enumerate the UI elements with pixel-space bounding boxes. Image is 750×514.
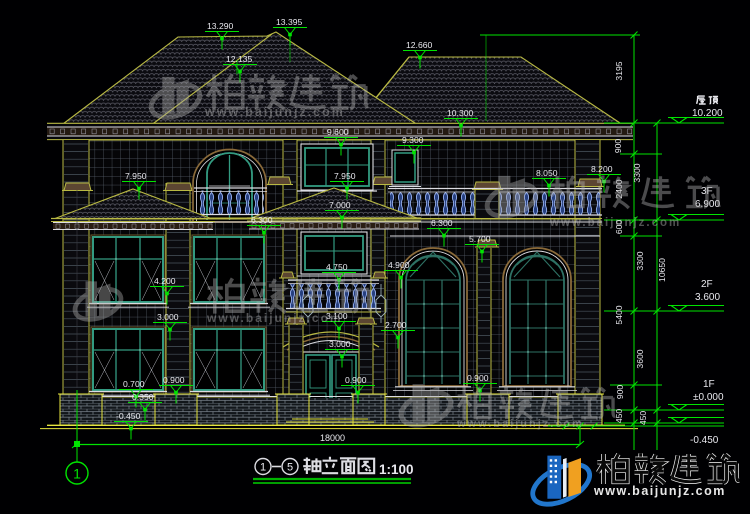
- svg-text:10650: 10650: [657, 258, 667, 282]
- svg-text:2F: 2F: [701, 279, 713, 290]
- svg-text:450: 450: [638, 411, 648, 426]
- svg-text:450: 450: [614, 409, 624, 424]
- svg-text:-0.450: -0.450: [116, 411, 141, 421]
- svg-text:1:100: 1:100: [379, 462, 414, 477]
- svg-text:13.290: 13.290: [207, 21, 234, 31]
- svg-text:www.baijunjz.com: www.baijunjz.com: [206, 311, 343, 325]
- svg-text:9.600: 9.600: [327, 127, 349, 137]
- svg-text:3.000: 3.000: [329, 339, 351, 349]
- svg-text:5: 5: [287, 462, 293, 474]
- svg-text:4.200: 4.200: [154, 276, 176, 286]
- svg-text:18000: 18000: [320, 433, 345, 443]
- svg-text:9.300: 9.300: [402, 135, 424, 145]
- svg-text:7.950: 7.950: [334, 171, 356, 181]
- svg-text:6.300: 6.300: [431, 218, 453, 228]
- svg-text:5.700: 5.700: [469, 234, 491, 244]
- svg-text:4.900: 4.900: [388, 260, 410, 270]
- svg-text:www.baijunjz.com: www.baijunjz.com: [456, 418, 584, 430]
- svg-text:10.300: 10.300: [447, 108, 474, 118]
- svg-text:1F: 1F: [703, 379, 715, 390]
- svg-text:3.000: 3.000: [157, 312, 179, 322]
- svg-text:www.baijunjz.com: www.baijunjz.com: [593, 484, 726, 498]
- svg-text:7.000: 7.000: [329, 200, 351, 210]
- svg-text:2.700: 2.700: [385, 320, 407, 330]
- svg-text:3.600: 3.600: [695, 292, 720, 303]
- svg-text:8.050: 8.050: [536, 168, 558, 178]
- svg-text:12.135: 12.135: [226, 54, 253, 64]
- svg-text:13.395: 13.395: [276, 17, 303, 27]
- svg-text:0.350: 0.350: [132, 392, 154, 402]
- svg-text:1: 1: [260, 462, 266, 474]
- svg-text:10.200: 10.200: [692, 108, 723, 119]
- svg-text:±0.000: ±0.000: [693, 392, 724, 403]
- svg-text:0.900: 0.900: [345, 375, 367, 385]
- svg-text:0.700: 0.700: [123, 379, 145, 389]
- svg-text:5400: 5400: [614, 305, 624, 324]
- svg-text:www.baijunjz.com: www.baijunjz.com: [204, 105, 345, 119]
- svg-text:0.900: 0.900: [163, 375, 185, 385]
- svg-text:6.300: 6.300: [251, 215, 273, 225]
- svg-text:0.900: 0.900: [467, 373, 489, 383]
- svg-text:7.950: 7.950: [125, 171, 147, 181]
- svg-text:900: 900: [615, 385, 625, 400]
- svg-text:900: 900: [613, 139, 623, 154]
- svg-text:4.750: 4.750: [326, 262, 348, 272]
- svg-text:3300: 3300: [635, 251, 645, 270]
- svg-text:-0.450: -0.450: [690, 435, 719, 446]
- svg-text:1: 1: [73, 466, 81, 482]
- svg-text:www.baijunjz.com: www.baijunjz.com: [549, 217, 681, 229]
- svg-text:3300: 3300: [632, 163, 642, 182]
- svg-text:8.200: 8.200: [591, 164, 613, 174]
- svg-text:3600: 3600: [635, 349, 645, 368]
- svg-text:12.660: 12.660: [406, 40, 433, 50]
- svg-text:3195: 3195: [614, 61, 624, 80]
